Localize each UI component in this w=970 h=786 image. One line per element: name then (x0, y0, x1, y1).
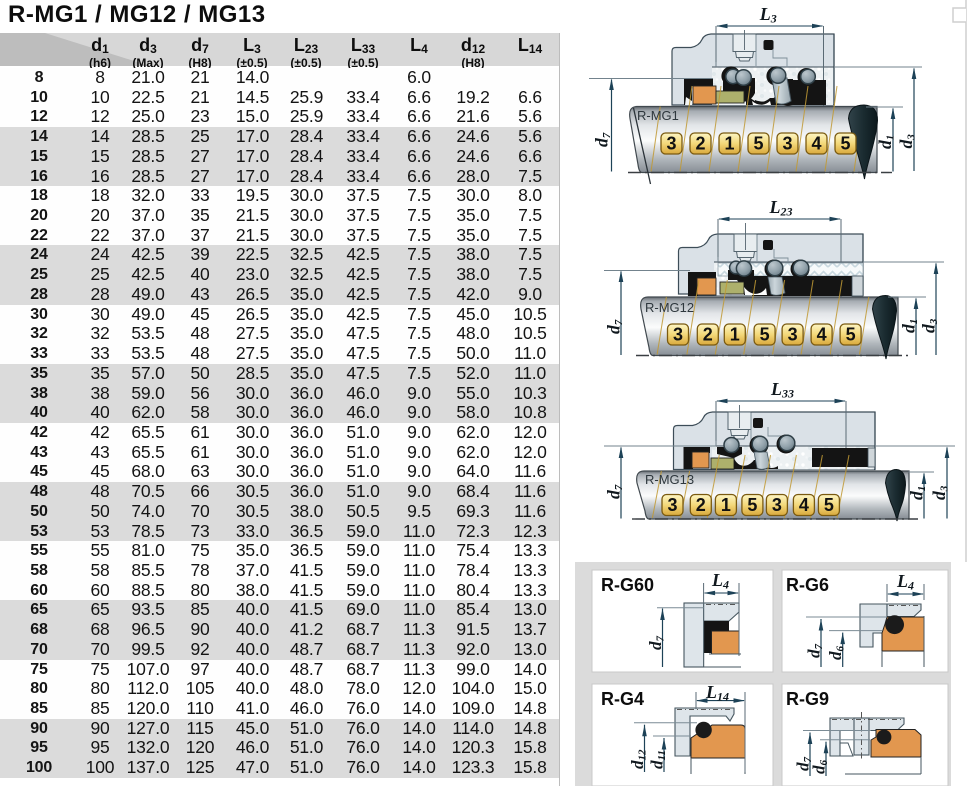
svg-text:5: 5 (824, 495, 834, 515)
svg-text:d3: d3 (919, 318, 941, 333)
svg-text:1: 1 (724, 134, 734, 154)
svg-text:2: 2 (703, 325, 713, 345)
svg-text:3: 3 (782, 134, 792, 154)
svg-text:3: 3 (673, 325, 683, 345)
svg-text:5: 5 (760, 325, 770, 345)
svg-text:3: 3 (772, 495, 782, 515)
svg-text:4: 4 (811, 134, 821, 154)
svg-text:d1: d1 (907, 486, 929, 500)
svg-text:1: 1 (730, 325, 740, 345)
svg-text:4: 4 (817, 325, 827, 345)
svg-text:R-G6: R-G6 (786, 575, 829, 595)
svg-text:d1: d1 (875, 135, 897, 149)
svg-text:d3: d3 (929, 485, 951, 500)
svg-text:R-G9: R-G9 (786, 689, 829, 709)
svg-text:d7: d7 (604, 484, 626, 499)
svg-text:5: 5 (753, 134, 763, 154)
svg-text:R-G60: R-G60 (601, 575, 654, 595)
svg-text:d7: d7 (592, 132, 614, 147)
svg-text:L33: L33 (770, 379, 794, 401)
svg-text:R-MG1: R-MG1 (637, 108, 679, 123)
svg-text:3: 3 (788, 325, 798, 345)
svg-text:d7: d7 (604, 319, 626, 334)
svg-text:5: 5 (840, 134, 850, 154)
svg-text:5: 5 (747, 495, 757, 515)
svg-text:L23: L23 (769, 197, 793, 219)
svg-text:3: 3 (666, 134, 676, 154)
svg-text:4: 4 (799, 495, 809, 515)
svg-text:R-G4: R-G4 (601, 689, 644, 709)
svg-text:R-MG12: R-MG12 (645, 300, 694, 315)
svg-text:3: 3 (667, 495, 677, 515)
svg-text:d3: d3 (896, 134, 918, 149)
svg-text:L3: L3 (759, 4, 777, 26)
svg-text:d1: d1 (899, 319, 921, 333)
svg-text:2: 2 (695, 134, 705, 154)
svg-text:1: 1 (721, 495, 731, 515)
svg-text:5: 5 (846, 325, 856, 345)
svg-text:R-MG13: R-MG13 (645, 472, 694, 487)
svg-text:2: 2 (696, 495, 706, 515)
